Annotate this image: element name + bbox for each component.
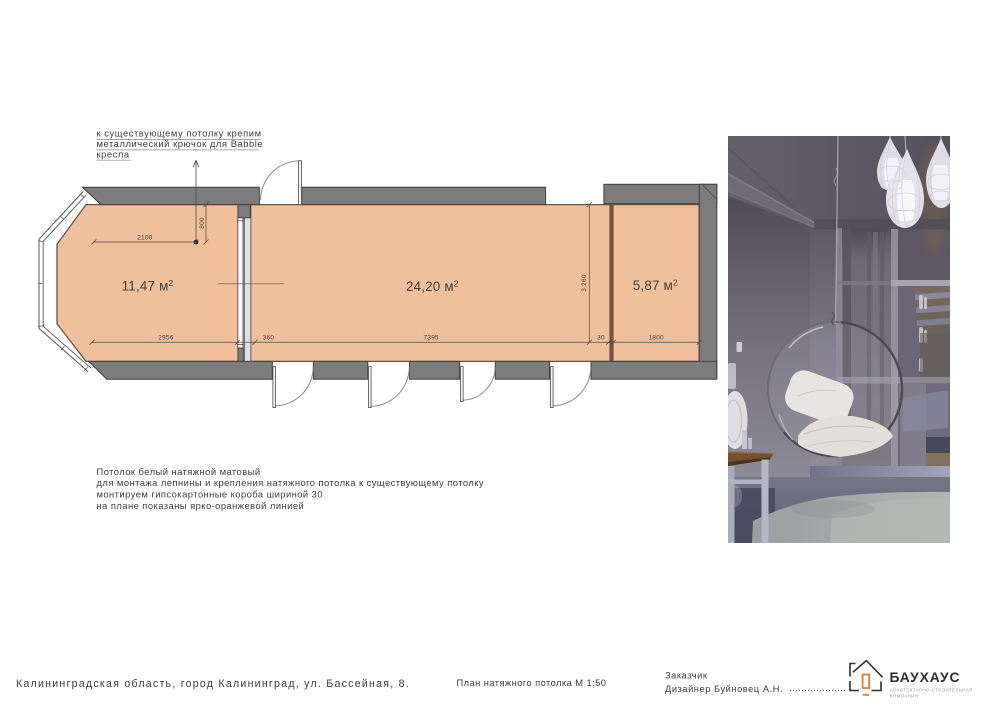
svg-text:1800: 1800	[649, 335, 665, 342]
svg-text:на плане показаны ярко-оранжев: на плане показаны ярко-оранжевой линией	[97, 500, 305, 511]
svg-text:БАУХАУС: БАУХАУС	[890, 670, 961, 685]
svg-text:КОМПАНИЯ: КОМПАНИЯ	[890, 694, 919, 699]
svg-text:800: 800	[199, 217, 206, 229]
svg-text:3 260: 3 260	[581, 274, 588, 292]
svg-text:АРХИТЕКТУРНО-СТРОИТЕЛЬНАЯ: АРХИТЕКТУРНО-СТРОИТЕЛЬНАЯ	[890, 688, 973, 693]
svg-text:Заказчик: Заказчик	[665, 671, 708, 681]
svg-text:2956: 2956	[158, 335, 174, 342]
svg-text:монтируем гипсокартонные короб: монтируем гипсокартонные короба шириной …	[97, 489, 324, 500]
svg-text:Калининградская область, город: Калининградская область, город Калинингр…	[16, 678, 410, 690]
svg-text:30: 30	[597, 335, 605, 342]
svg-text:24,20 м2: 24,20 м2	[406, 278, 459, 294]
svg-text:7395: 7395	[423, 335, 439, 342]
svg-text:для монтажа лепнины и креплени: для монтажа лепнины и крепления натяжног…	[97, 477, 485, 488]
svg-text:к существующему потолку крепим: к существующему потолку крепим	[97, 128, 262, 139]
svg-text:2100: 2100	[137, 235, 153, 242]
svg-text:План натяжного потолка М 1:50: План натяжного потолка М 1:50	[457, 678, 607, 688]
svg-text:360: 360	[263, 335, 275, 342]
svg-text:5,87 м2: 5,87 м2	[633, 278, 678, 294]
svg-text:11,47 м2: 11,47 м2	[122, 278, 174, 294]
svg-text:Потолок белый натяжной матовый: Потолок белый натяжной матовый	[97, 466, 261, 477]
svg-text:Дизайнер Буйновец А.Н.: Дизайнер Буйновец А.Н.	[665, 684, 783, 694]
